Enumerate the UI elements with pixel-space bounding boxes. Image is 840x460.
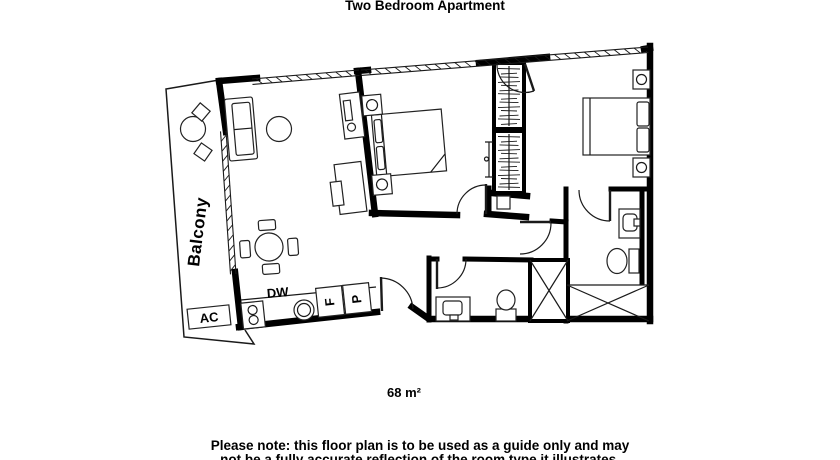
cooktop bbox=[241, 301, 266, 329]
area-label: 68 m² bbox=[387, 385, 422, 400]
coffee-table bbox=[267, 117, 292, 142]
bedroom-2 bbox=[583, 70, 650, 177]
page-title: Two Bedroom Apartment bbox=[345, 0, 505, 13]
toilet-tank bbox=[496, 309, 516, 321]
tv-unit bbox=[328, 161, 367, 215]
dining-chair bbox=[287, 238, 298, 256]
toilet-bowl bbox=[607, 249, 627, 274]
basin bbox=[443, 301, 462, 315]
toilet-bowl bbox=[497, 290, 515, 310]
faucet bbox=[634, 219, 640, 226]
shower-2-cross bbox=[567, 285, 649, 321]
bathroom-1 bbox=[436, 260, 568, 321]
sofa bbox=[224, 97, 257, 161]
balcony-chair bbox=[194, 143, 212, 161]
dining-chair bbox=[240, 240, 251, 258]
dining-table bbox=[238, 218, 300, 276]
toilet-tank bbox=[629, 249, 639, 273]
dishwasher-label: DW bbox=[266, 284, 290, 301]
faucet bbox=[450, 315, 458, 320]
balcony-label: Balcony bbox=[184, 196, 211, 267]
bedroom-1 bbox=[362, 89, 448, 195]
nightstand bbox=[372, 174, 393, 196]
entry-door bbox=[381, 277, 382, 311]
dining-chair bbox=[262, 263, 280, 274]
pillow bbox=[374, 119, 383, 143]
fridge: F bbox=[316, 286, 345, 318]
pantry: P bbox=[343, 283, 372, 315]
fridge-label: F bbox=[322, 297, 338, 307]
door-knob bbox=[485, 157, 489, 161]
nightstand bbox=[633, 70, 650, 89]
disclaimer-line-2: not be a fully accurate reflection of th… bbox=[220, 452, 620, 460]
living-room bbox=[224, 92, 367, 276]
pillow bbox=[637, 128, 649, 152]
dining-chair bbox=[258, 220, 276, 231]
ac-label: AC bbox=[199, 309, 220, 326]
ac-unit: AC bbox=[187, 305, 231, 329]
disclaimer-line-1: Please note: this floor plan is to be us… bbox=[211, 438, 630, 453]
nightstand bbox=[633, 158, 650, 177]
floor-plan-canvas: Two Bedroom Apartment 68 m² Please note:… bbox=[0, 0, 840, 460]
pillow bbox=[376, 146, 385, 170]
hall-cabinet bbox=[497, 196, 510, 209]
ensuite-bathroom bbox=[567, 209, 649, 321]
nightstand bbox=[362, 94, 383, 116]
bedroom2-door bbox=[525, 64, 534, 91]
pillow bbox=[637, 102, 649, 126]
